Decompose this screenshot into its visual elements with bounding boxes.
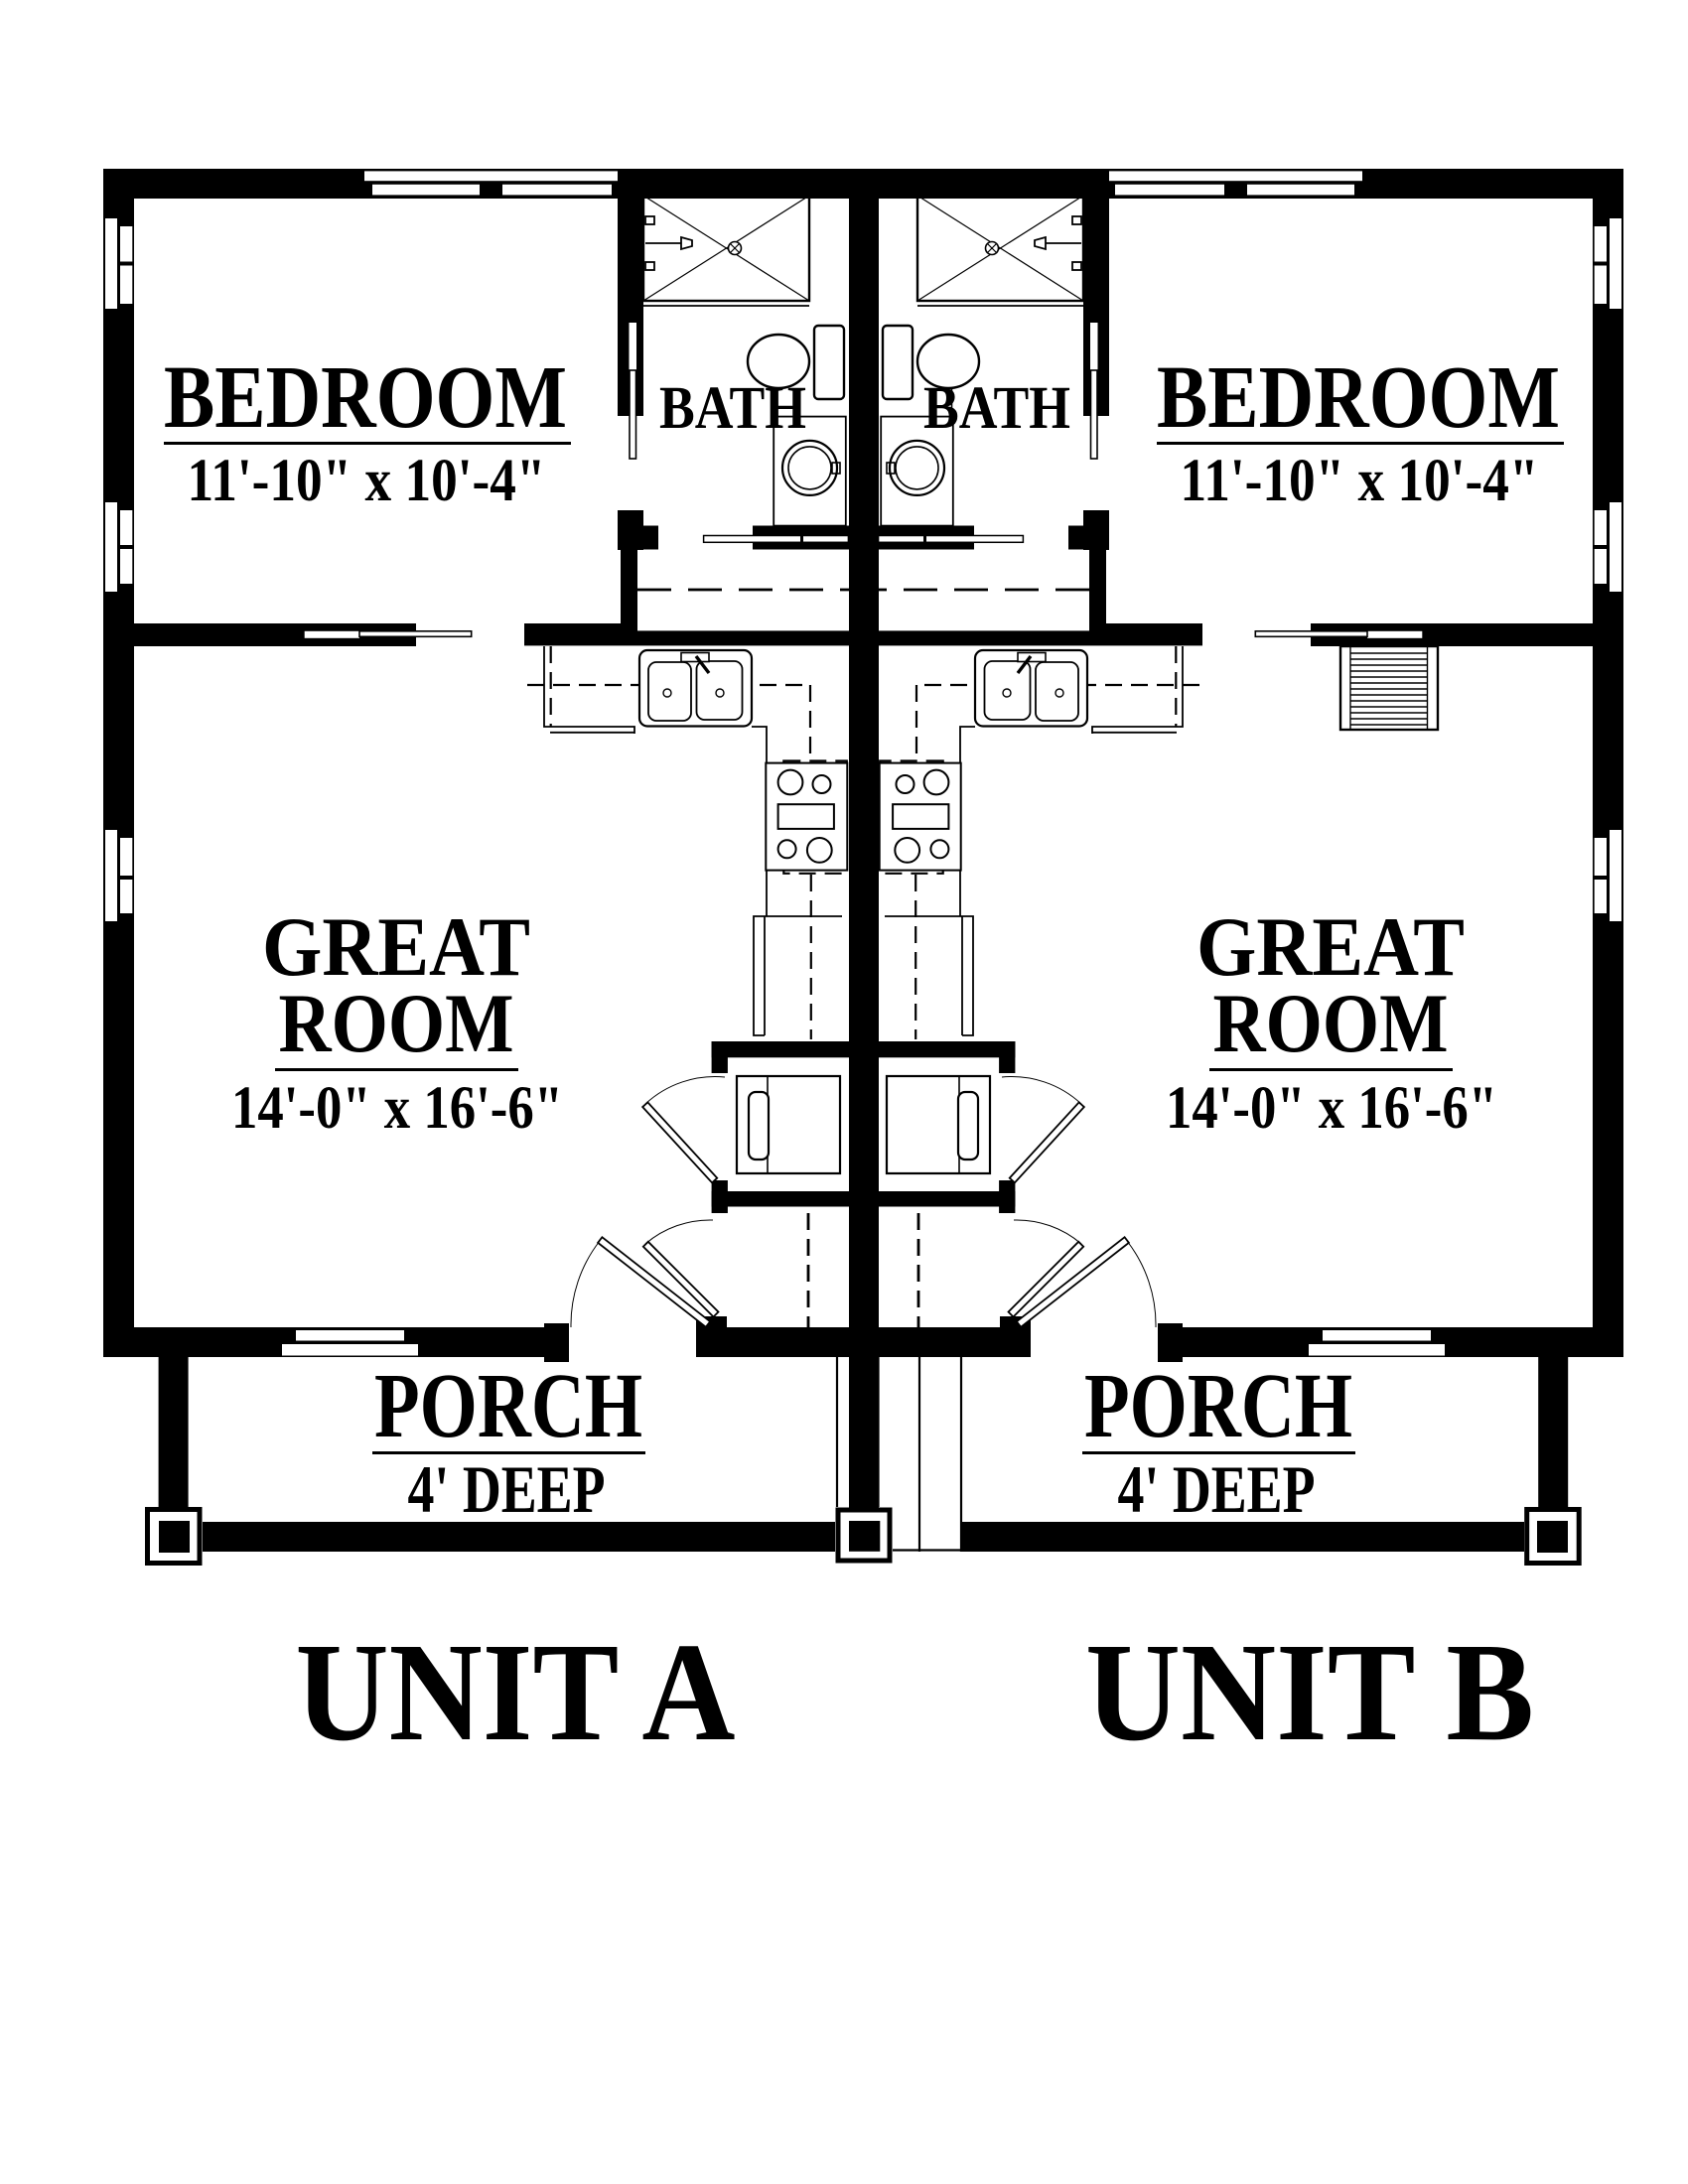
svg-text:ROOM: ROOM bbox=[1213, 977, 1449, 1070]
svg-text:PORCH: PORCH bbox=[1084, 1355, 1352, 1457]
svg-text:4' DEEP: 4' DEEP bbox=[1118, 1451, 1316, 1527]
svg-text:11'-10" x 10'-4": 11'-10" x 10'-4" bbox=[1181, 448, 1539, 514]
svg-text:BEDROOM: BEDROOM bbox=[164, 348, 567, 447]
svg-text:14'-0" x 16'-6": 14'-0" x 16'-6" bbox=[231, 1075, 563, 1142]
svg-text:14'-0" x 16'-6": 14'-0" x 16'-6" bbox=[1166, 1075, 1497, 1142]
svg-text:ROOM: ROOM bbox=[279, 977, 514, 1070]
svg-text:BEDROOM: BEDROOM bbox=[1157, 348, 1560, 447]
svg-text:PORCH: PORCH bbox=[374, 1355, 642, 1457]
svg-text:11'-10" x 10'-4": 11'-10" x 10'-4" bbox=[188, 448, 546, 514]
svg-text:BATH: BATH bbox=[923, 375, 1070, 442]
svg-text:UNIT B: UNIT B bbox=[1085, 1613, 1534, 1770]
svg-text:BATH: BATH bbox=[659, 375, 806, 442]
svg-text:UNIT A: UNIT A bbox=[296, 1613, 736, 1770]
svg-text:4' DEEP: 4' DEEP bbox=[408, 1451, 606, 1527]
